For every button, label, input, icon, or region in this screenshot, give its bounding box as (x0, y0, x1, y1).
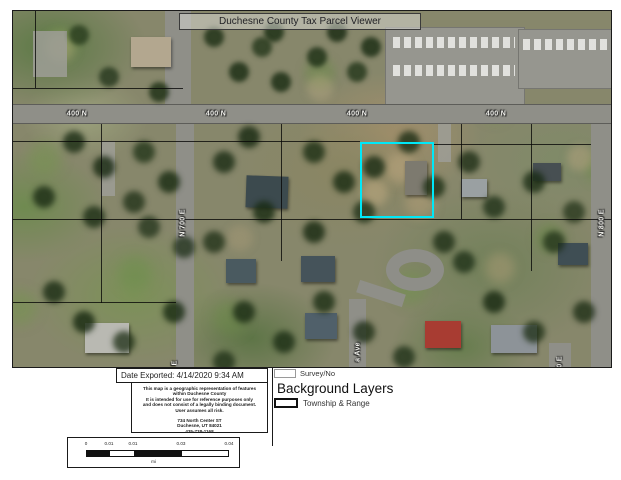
road-n800e (591, 124, 612, 368)
parcel-line (531, 124, 532, 271)
address-line: 435-738-1168 (132, 429, 267, 434)
street-label-e-partial: E (172, 361, 179, 366)
scale-segment (110, 451, 134, 456)
building-roof-red (425, 321, 461, 348)
parcel-line (281, 124, 282, 261)
street-label-ave-partial: a Ave (355, 342, 362, 362)
map-canvas[interactable]: 400 N 400 N 400 N 400 N N 700 E N 800 E … (12, 10, 612, 368)
road-n700e (176, 124, 194, 368)
scale-tick: 0.01 (105, 441, 114, 446)
date-exported-text: Date Exported: 4/14/2020 9:34 AM (121, 371, 244, 380)
scale-unit-label: mi (68, 459, 239, 464)
scale-tick: 0.03 (177, 441, 186, 446)
app-title: Duchesne County Tax Parcel Viewer (219, 16, 381, 27)
parcel-line (13, 88, 183, 89)
township-range-swatch (274, 398, 298, 408)
street-label-n800e: N 800 E (599, 209, 606, 236)
building-roof (226, 259, 256, 283)
building-roof (558, 243, 588, 265)
parcel-line (101, 219, 102, 303)
parking-lot (518, 29, 612, 89)
street-label-400n: 400 N (206, 111, 226, 118)
survey-layer-label: Survey/No (300, 369, 335, 378)
building-roof (245, 175, 288, 208)
parcel-line (434, 144, 591, 145)
scale-tick: 0.01 (129, 441, 138, 446)
road-400n (13, 104, 612, 124)
street-label-400n: 400 N (67, 111, 87, 118)
date-exported-box: Date Exported: 4/14/2020 9:34 AM (116, 368, 268, 383)
street-label-400n: 400 N (347, 111, 367, 118)
parcel-line (35, 11, 36, 88)
street-label-400n: 400 N (486, 111, 506, 118)
parked-cars-row (393, 37, 515, 48)
building-roof (305, 313, 337, 339)
parcel-line (461, 124, 462, 219)
parcel-line (13, 219, 612, 220)
scale-segment (87, 451, 110, 456)
building-roof (461, 179, 487, 197)
parked-cars-row (393, 65, 515, 76)
legend-divider (272, 368, 273, 446)
driveway (438, 124, 451, 162)
survey-layer-swatch (274, 369, 296, 378)
parcel-line (13, 302, 176, 303)
scale-segment (134, 451, 182, 456)
driveway (33, 31, 67, 77)
selected-parcel-highlight[interactable] (360, 142, 434, 218)
street-label-0e-partial: 0 E (557, 356, 564, 367)
parcel-line (101, 124, 102, 219)
driveway (101, 141, 115, 196)
building-roof (85, 323, 129, 353)
scale-segment (182, 451, 228, 456)
disclaimer-line: and does not consist of a legally bindin… (132, 402, 267, 407)
scale-tick: 0.04 (225, 441, 234, 446)
scale-bar-box: 0 0.01 0.01 0.03 0.04 mi (67, 437, 240, 468)
parcel-line (13, 141, 360, 142)
scale-bar (86, 450, 229, 457)
app-title-bar: Duchesne County Tax Parcel Viewer (179, 13, 421, 30)
scale-tick-labels: 0 0.01 0.01 0.03 0.04 (68, 441, 239, 447)
cul-de-sac-street (386, 249, 444, 291)
background-layers-title: Background Layers (277, 381, 393, 396)
building-roof (491, 325, 537, 353)
scale-tick: 0 (85, 441, 88, 446)
building-roof (131, 37, 171, 67)
building-roof (301, 256, 335, 282)
building-roof (533, 163, 561, 181)
parcel-viewer-screen: 400 N 400 N 400 N 400 N N 700 E N 800 E … (0, 0, 621, 480)
disclaimer-box: This map is a geographic representation … (131, 382, 268, 433)
township-range-label: Township & Range (303, 399, 370, 408)
street-label-n700e: N 700 E (180, 209, 187, 236)
parked-cars-row (523, 39, 609, 50)
